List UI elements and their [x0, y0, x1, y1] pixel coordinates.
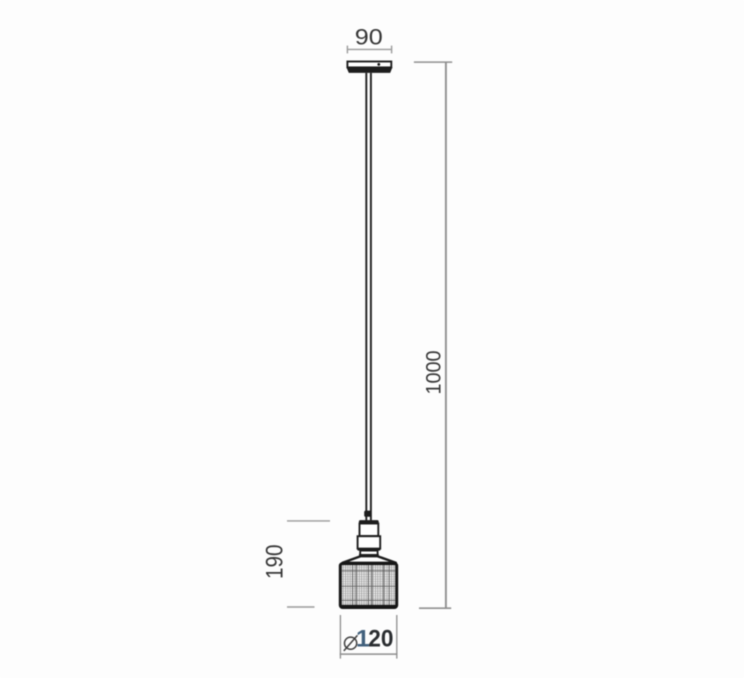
svg-text:20: 20: [368, 625, 393, 652]
svg-text:90: 90: [355, 24, 383, 49]
svg-text:1000: 1000: [421, 350, 445, 394]
svg-text:190: 190: [261, 544, 288, 579]
